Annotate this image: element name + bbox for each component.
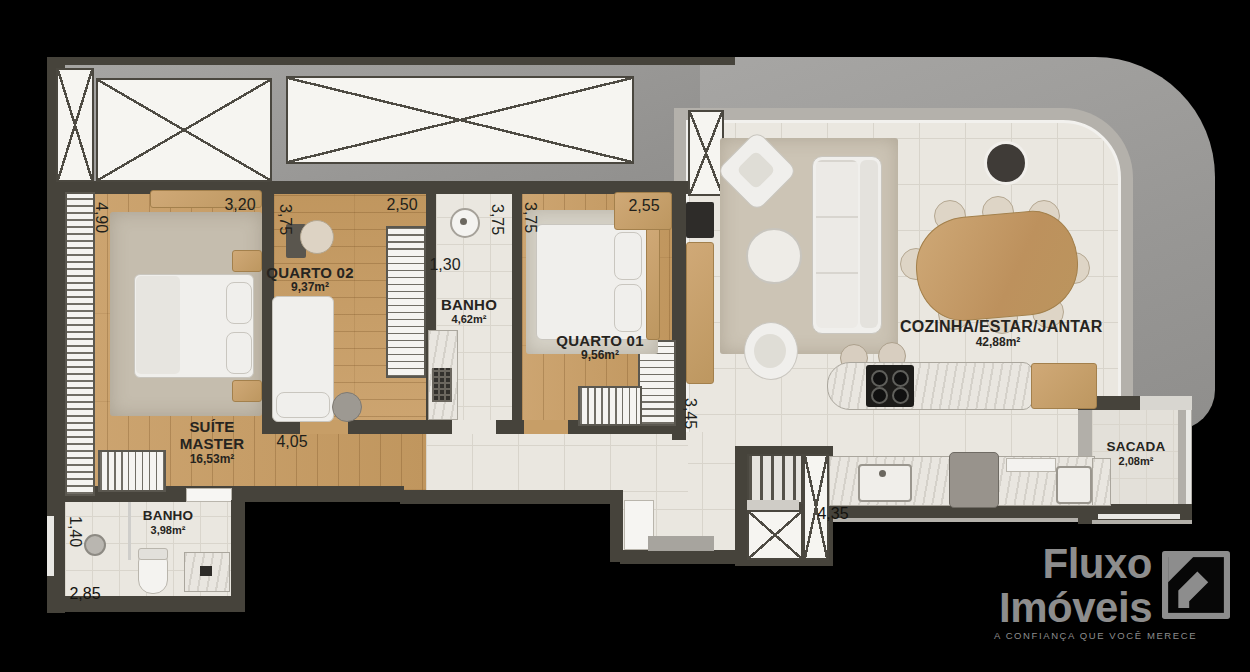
quarto02-area: 9,37m² [260,281,360,295]
quarto02-chair [300,220,334,254]
dim-quarto02-left: 3,75 [276,192,294,248]
banho-suite-area: 4,62m² [434,313,504,326]
banho-suite-sink-faucet [460,218,467,225]
suite-closet-left [65,192,95,496]
suite-pillow-2 [226,332,252,374]
corridor-floor [426,432,688,492]
quarto02-closet [386,226,426,378]
brand-arrow-icon [1162,551,1230,619]
toilet-tank [138,548,168,560]
dim-banho-suite-left: 3,75 [488,192,506,248]
dim-suite-top: 3,20 [210,196,270,214]
shower-head-icon [84,534,106,556]
quarto01-pillow-1 [614,232,642,280]
quarto01-door [524,420,568,434]
suite-bed-blanket [136,276,180,374]
burner-icon [871,387,888,404]
quarto02-pillow [276,392,330,418]
sacada-label: SACADA 2,08m² [1098,439,1174,467]
burner-icon [892,387,909,404]
suite-name-line2: MASTER [158,435,266,452]
suite-nightstand-2 [232,380,262,402]
sacada-area: 2,08m² [1098,455,1174,468]
dim-banho-suite-width: 1,30 [420,256,470,274]
shaft-top-a [96,78,272,182]
suite-closet-bottom [98,450,166,492]
quarto01-name: QUARTO 01 [550,332,650,349]
entry-landing [648,536,714,551]
banho-social-window [47,516,54,576]
suite-area: 16,53m² [158,453,266,467]
burner-icon [892,370,909,387]
side-round-table [984,141,1028,185]
quarto02-pouf [332,392,362,422]
floor-plan-canvas: 4,90 3,20 3,75 2,50 3,75 3,75 2,55 1,30 … [0,0,1250,672]
entry-wall-bottom [620,550,735,564]
tv-console [686,242,714,384]
stair-void [747,510,803,560]
cozinha-area: 42,88m² [900,336,1096,350]
shaft-living [688,110,724,196]
sacada-glass-top [1140,396,1192,410]
dim-hall: 4,05 [266,433,318,451]
sofa-cushions [816,160,858,328]
stair-landing [747,500,799,510]
banho-social-name: BANHO [120,508,216,524]
banho-social-label: BANHO 3,98m² [120,508,216,536]
second-sink [1056,466,1092,504]
shaft-left [56,68,94,182]
banho-suite-door [452,420,496,434]
burner-icon [871,370,888,387]
brand-tagline: A CONFIANÇA QUE VOCÊ MERECE [994,630,1194,641]
brand-logo-text: Fluxo Imóveis [940,542,1152,630]
quarto01-headboard [646,224,660,340]
quarto02-door [300,420,348,434]
dim-quarto02-top: 2,50 [374,196,430,214]
dim-quarto01-left: 3,75 [521,190,539,246]
dim-banho-social-bottom: 2,85 [60,585,110,603]
lounge-egg-chair-seat [754,334,786,368]
banho-suite-name: BANHO [434,296,504,313]
kitchen-sink [858,464,912,502]
stairs [747,454,803,504]
coffee-table [746,228,802,284]
corridor-bottom-wall [400,490,623,504]
cozinha-label: COZINHA/ESTAR/JANTAR 42,88m² [900,318,1096,350]
quarto02-name: QUARTO 02 [260,264,360,281]
quarto02-label: QUARTO 02 9,37m² [260,264,360,295]
dim-quarto01-top: 2,55 [618,197,670,215]
quarto01-label: QUARTO 01 9,56m² [550,332,650,363]
sofa-back [860,160,878,328]
banho-social-area: 3,98m² [120,524,216,537]
sacada-cap-bottom [1098,514,1180,519]
sacada-window-line [1186,400,1191,504]
kitchen-island [827,362,1033,410]
fridge [949,452,999,508]
dim-living-left: 3,45 [681,384,699,444]
kitchen-sink-faucet [879,470,886,477]
brand-name-line1: Fluxo [940,542,1152,586]
suite-nightstand-1 [232,250,262,272]
vanity-faucet [200,566,212,576]
dim-suite-left: 4,90 [92,190,110,246]
suite-pillow-1 [226,282,252,324]
banho-social-door [186,488,232,502]
quarto01-area: 9,56m² [550,349,650,363]
ac-unit [686,202,714,238]
banho-suite-label: BANHO 4,62m² [434,296,504,326]
cozinha-name: COZINHA/ESTAR/JANTAR [900,318,1096,336]
outer-wall-top [47,57,735,65]
banho-suite-drain [432,368,452,402]
brand-name-line2: Imóveis [940,586,1152,630]
counter-shelf [1006,458,1056,472]
dim-kitchen: 4,35 [808,506,858,522]
suite-master-label: SUÍTE MASTER 16,53m² [158,418,266,466]
cooktop [866,365,914,407]
quarto01-pillow-2 [614,284,642,332]
sacada-name: SACADA [1098,439,1174,455]
shaft-top-b [286,76,634,164]
dim-banho-social-left: 1,40 [66,504,84,560]
island-cabinet [1031,363,1097,409]
quarto01-closet-bottom [578,386,642,426]
suite-name-line1: SUÍTE [158,418,266,435]
